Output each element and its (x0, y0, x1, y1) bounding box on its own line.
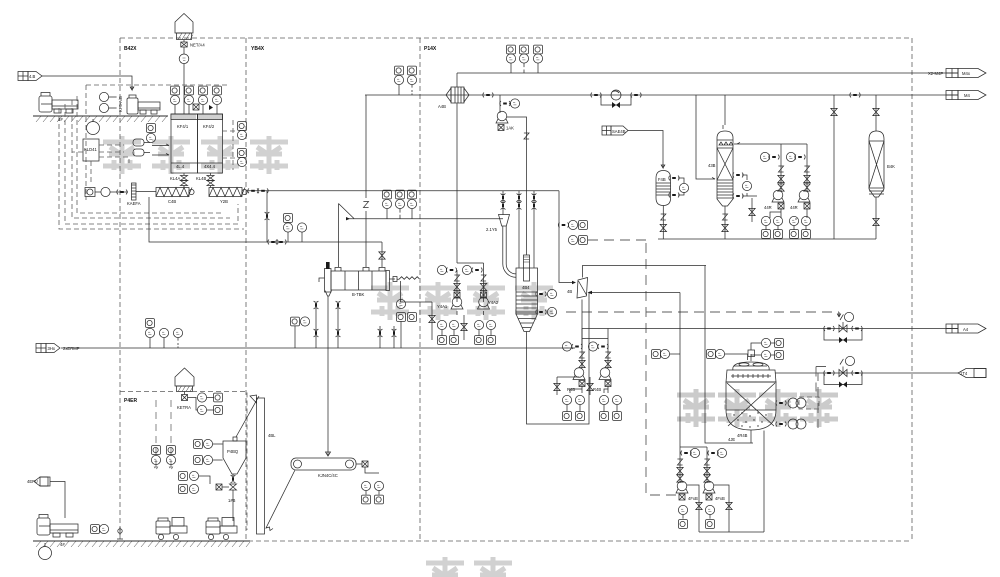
svg-text:4R4B: 4R4B (737, 433, 748, 438)
svg-text:KETRA: KETRA (177, 405, 191, 410)
svg-text:2.1Y5: 2.1Y5 (486, 227, 498, 232)
svg-text:F4B: F4B (658, 177, 666, 182)
svg-text:A4: A4 (963, 327, 969, 332)
svg-text:C4B: C4B (168, 199, 176, 204)
svg-text:KF4/2: KF4/2 (203, 124, 215, 129)
svg-text:YB4X: YB4X (251, 46, 265, 52)
svg-text:1AK: 1AK (506, 126, 514, 131)
svg-text:R4B: R4B (567, 387, 575, 392)
svg-text:KAEFA: KAEFA (127, 201, 141, 206)
svg-text:4FxB: 4FxB (688, 496, 698, 501)
svg-text:KL4B: KL4B (196, 176, 206, 181)
svg-text:4FxB: 4FxB (715, 496, 725, 501)
svg-text:KLD41: KLD41 (84, 147, 97, 152)
svg-text:44R: 44R (764, 205, 772, 210)
svg-text:KF4/1: KF4/1 (177, 124, 189, 129)
svg-text:4EFU: 4EFU (27, 479, 38, 484)
svg-text:Y4A1: Y4A1 (437, 304, 448, 309)
svg-text:4BL: 4BL (268, 433, 276, 438)
svg-text:1#B: 1#B (228, 498, 236, 503)
svg-text:B-TBK: B-TBK (352, 292, 365, 297)
svg-text:Y2B: Y2B (220, 199, 228, 204)
svg-text:NET/A4: NET/A4 (190, 43, 205, 48)
svg-text:3Hx: 3Hx (48, 346, 56, 351)
svg-text:4JE: 4JE (728, 437, 735, 442)
svg-text:B42X: B42X (124, 46, 137, 52)
svg-text:4.B: 4.B (29, 74, 35, 79)
svg-text:Y4A2: Y4A2 (488, 300, 499, 305)
svg-text:KJN4C/4C: KJN4C/4C (318, 473, 338, 478)
svg-text:P4ER: P4ER (124, 398, 137, 404)
svg-text:M4: M4 (964, 93, 970, 98)
svg-text:4X4.4: 4X4.4 (204, 164, 216, 169)
svg-text:1T4: 1T4 (960, 371, 968, 376)
svg-text:KF5-A/B: KF5-A/B (118, 96, 123, 112)
svg-text:P4BQ: P4BQ (227, 449, 239, 454)
svg-text:A4B: A4B (438, 104, 446, 109)
svg-text:2xERMP: 2xERMP (63, 346, 80, 351)
svg-text:SAE4B: SAE4B (612, 129, 626, 134)
svg-text:43B: 43B (708, 163, 716, 168)
svg-text:P14X: P14X (424, 46, 437, 52)
svg-text:4L.4: 4L.4 (176, 164, 185, 169)
svg-text:4B: 4B (567, 289, 572, 294)
svg-text:R4B: R4B (593, 387, 601, 392)
svg-text:KL4A: KL4A (170, 176, 180, 181)
svg-text:X2-M4P: X2-M4P (928, 71, 943, 76)
svg-text:B4K: B4K (887, 164, 895, 169)
svg-text:M4x: M4x (962, 71, 971, 76)
svg-text:4B4: 4B4 (522, 285, 530, 290)
svg-text:44R: 44R (790, 205, 798, 210)
